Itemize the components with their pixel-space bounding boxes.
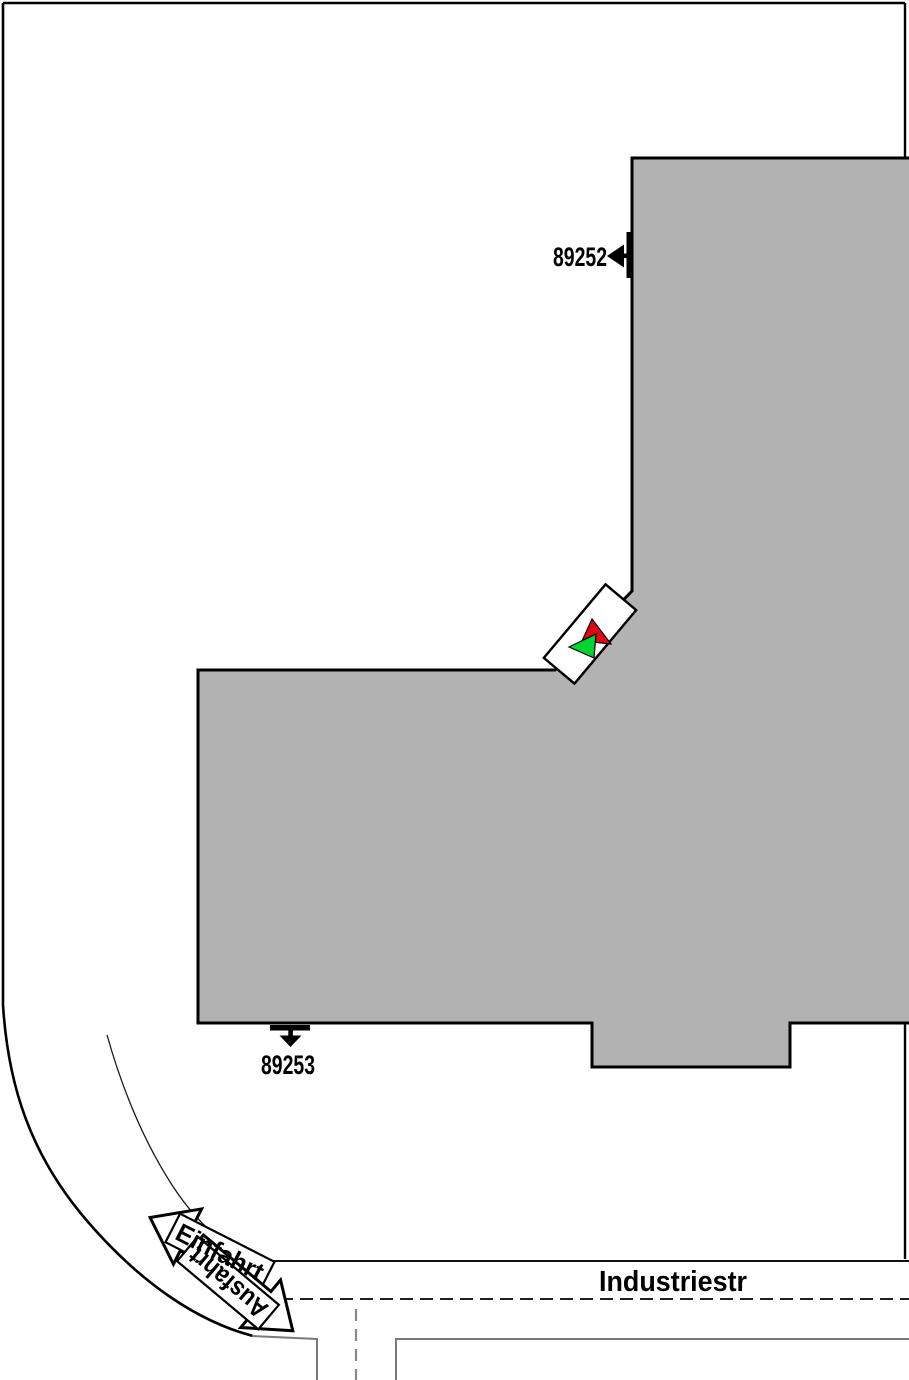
door-lower-label: 89253 bbox=[261, 1050, 315, 1080]
site-plan-drawing: 89252 89253 Industriestr Ausfahrt Einfah… bbox=[0, 0, 909, 1380]
street-name-label: Industriestr bbox=[599, 1266, 747, 1298]
site-plan-page: 89252 89253 Industriestr Ausfahrt Einfah… bbox=[0, 0, 909, 1380]
door-upper-label: 89252 bbox=[553, 242, 607, 272]
